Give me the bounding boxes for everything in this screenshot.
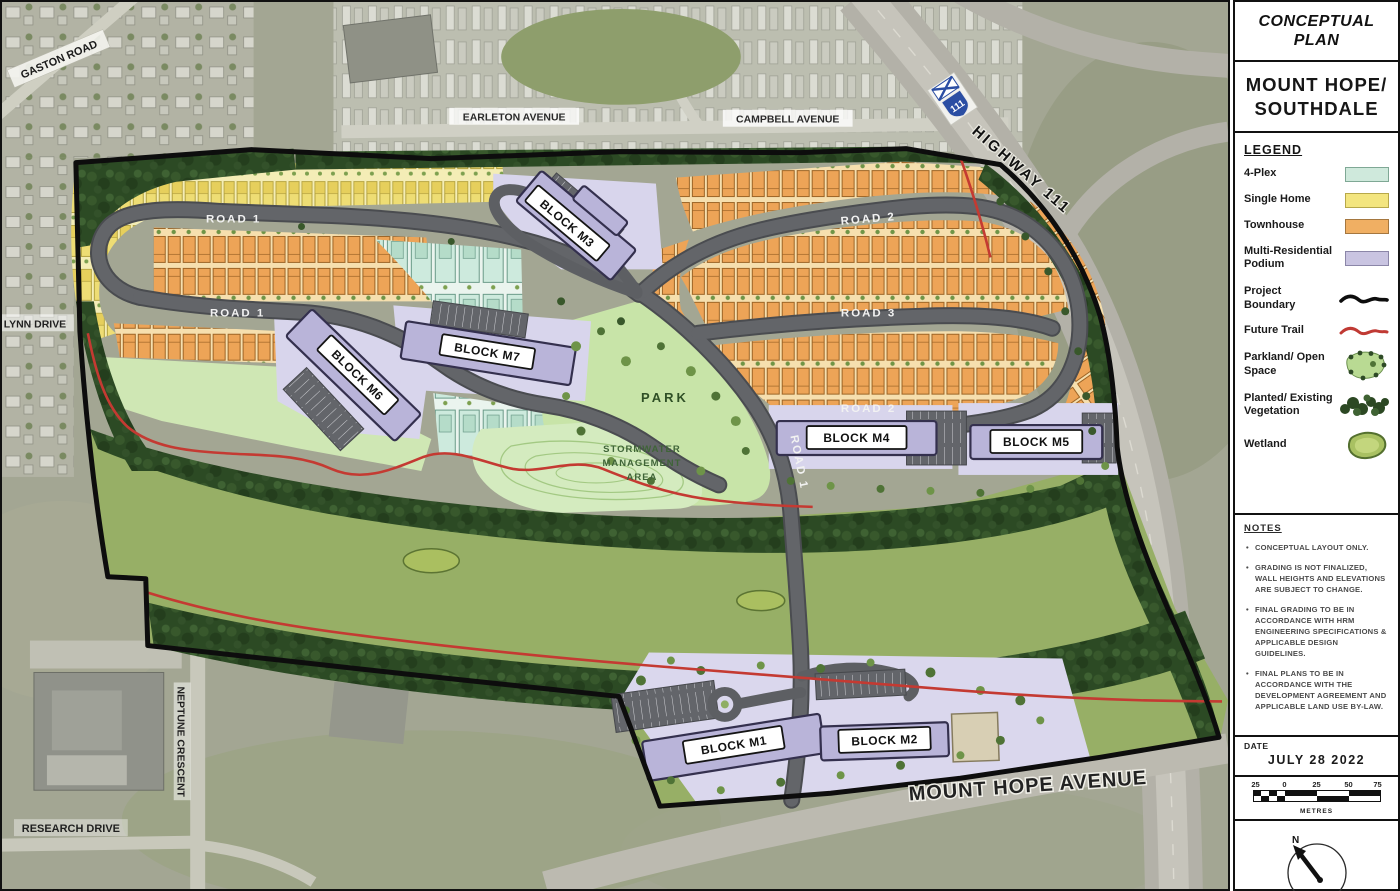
legend-item-vegetation: Planted/ Existing Vegetation bbox=[1244, 392, 1389, 420]
note-item: CONCEPTUAL LAYOUT ONLY. bbox=[1244, 542, 1389, 553]
road-1-label-upper: ROAD 1 bbox=[206, 214, 261, 226]
svg-text:BLOCK M5: BLOCK M5 bbox=[1003, 435, 1070, 449]
legend-item-multires: Multi-Residential Podium bbox=[1244, 245, 1389, 273]
research-drive-pavement bbox=[2, 842, 198, 845]
date-label: DATE bbox=[1244, 741, 1389, 751]
block-m2-label: BLOCK M2 bbox=[838, 727, 931, 753]
block-m5-label: BLOCK M5 bbox=[990, 430, 1082, 453]
earleton-campbell-street bbox=[341, 124, 1008, 132]
scale-unit: METRES bbox=[1253, 808, 1381, 815]
wetland-blob bbox=[403, 549, 459, 573]
legend-item-wetland: Wetland bbox=[1244, 430, 1389, 460]
research-drive-label: RESEARCH DRIVE bbox=[14, 819, 128, 836]
svg-text:RESEARCH DRIVE: RESEARCH DRIVE bbox=[22, 823, 120, 835]
note-item: FINAL GRADING TO BE IN ACCORDANCE WITH H… bbox=[1244, 604, 1389, 659]
north-arrow-icon: N bbox=[1247, 829, 1387, 891]
legend-item-boundary: Project Boundary bbox=[1244, 285, 1389, 313]
multires-swatch bbox=[1345, 251, 1389, 266]
date-section: DATE JULY 28 2022 bbox=[1235, 737, 1398, 777]
scale-section: 25 0 25 50 75 METRES bbox=[1235, 777, 1398, 821]
legend-title: LEGEND bbox=[1244, 143, 1389, 157]
svg-text:CAMPBELL AVENUE: CAMPBELL AVENUE bbox=[736, 115, 839, 126]
lynn-drive-label: LYNN DRIVE bbox=[2, 314, 74, 331]
roundabout bbox=[712, 691, 738, 717]
block-m4-label: BLOCK M4 bbox=[807, 426, 907, 449]
svg-text:MANAGEMENT: MANAGEMENT bbox=[602, 458, 681, 469]
boundary-swatch bbox=[1339, 292, 1389, 306]
legend-item-4plex: 4-Plex bbox=[1244, 167, 1389, 182]
svg-text:LYNN DRIVE: LYNN DRIVE bbox=[4, 319, 66, 330]
road-3-label: ROAD 3 bbox=[841, 307, 896, 319]
note-item: GRADING IS NOT FINALIZED, WALL HEIGHTS A… bbox=[1244, 562, 1389, 595]
notes-section: NOTES CONCEPTUAL LAYOUT ONLY. GRADING IS… bbox=[1235, 515, 1398, 737]
plan-type-title: CONCEPTUAL PLAN bbox=[1235, 2, 1398, 62]
title-block-panel: CONCEPTUAL PLAN MOUNT HOPE/ SOUTHDALE LE… bbox=[1233, 0, 1400, 891]
map-area: GASTON ROAD EARLETON AVENUE CAMPBELL AVE… bbox=[0, 0, 1230, 891]
earleton-avenue-label: EARLETON AVENUE bbox=[449, 108, 579, 125]
townhouse-swatch bbox=[1345, 219, 1389, 234]
road-2-label-bottom: ROAD 2 bbox=[841, 403, 896, 415]
campbell-avenue-label: CAMPBELL AVENUE bbox=[723, 110, 853, 127]
svg-text:BLOCK M4: BLOCK M4 bbox=[823, 431, 890, 445]
parkland-swatch bbox=[1343, 349, 1389, 381]
north-letter: N bbox=[1292, 835, 1299, 846]
date-value: JULY 28 2022 bbox=[1244, 753, 1389, 767]
legend-item-trail: Future Trail bbox=[1244, 324, 1389, 338]
svg-text:AREA: AREA bbox=[627, 472, 658, 483]
fourplex-swatch bbox=[1345, 167, 1389, 182]
notes-list: CONCEPTUAL LAYOUT ONLY. GRADING IS NOT F… bbox=[1244, 542, 1389, 712]
wetland-blob bbox=[737, 591, 785, 611]
conceptual-plan-sheet: GASTON ROAD EARLETON AVENUE CAMPBELL AVE… bbox=[0, 0, 1400, 891]
trail-swatch bbox=[1339, 324, 1389, 338]
site-plan-map: GASTON ROAD EARLETON AVENUE CAMPBELL AVE… bbox=[2, 2, 1228, 889]
scale-bar bbox=[1253, 790, 1381, 802]
wetland-swatch bbox=[1345, 430, 1389, 460]
svg-text:EARLETON AVENUE: EARLETON AVENUE bbox=[463, 113, 566, 124]
scale-ticks: 25 0 25 50 75 bbox=[1253, 780, 1381, 789]
svg-text:STORMWATER: STORMWATER bbox=[603, 444, 681, 455]
legend-item-single-home: Single Home bbox=[1244, 193, 1389, 208]
legend-item-parkland: Parkland/ Open Space bbox=[1244, 349, 1389, 381]
svg-text:NEPTUNE CRESCENT: NEPTUNE CRESCENT bbox=[175, 686, 186, 797]
legend-section: LEGEND 4-Plex Single Home Townhouse Mult… bbox=[1235, 133, 1398, 515]
notes-title: NOTES bbox=[1244, 523, 1389, 534]
road-1-label-lower: ROAD 1 bbox=[210, 307, 265, 319]
svg-text:BLOCK M2: BLOCK M2 bbox=[851, 732, 918, 748]
legend-item-townhouse: Townhouse bbox=[1244, 219, 1389, 234]
project-name: MOUNT HOPE/ SOUTHDALE bbox=[1235, 62, 1398, 132]
vegetation-swatch bbox=[1337, 392, 1389, 418]
neptune-crescent-label: NEPTUNE CRESCENT bbox=[174, 682, 191, 800]
park-label: PARK bbox=[641, 390, 689, 405]
north-arrow-section: N bbox=[1235, 821, 1398, 891]
single-home-swatch bbox=[1345, 193, 1389, 208]
note-item: FINAL PLANS TO BE IN ACCORDANCE WITH THE… bbox=[1244, 668, 1389, 712]
